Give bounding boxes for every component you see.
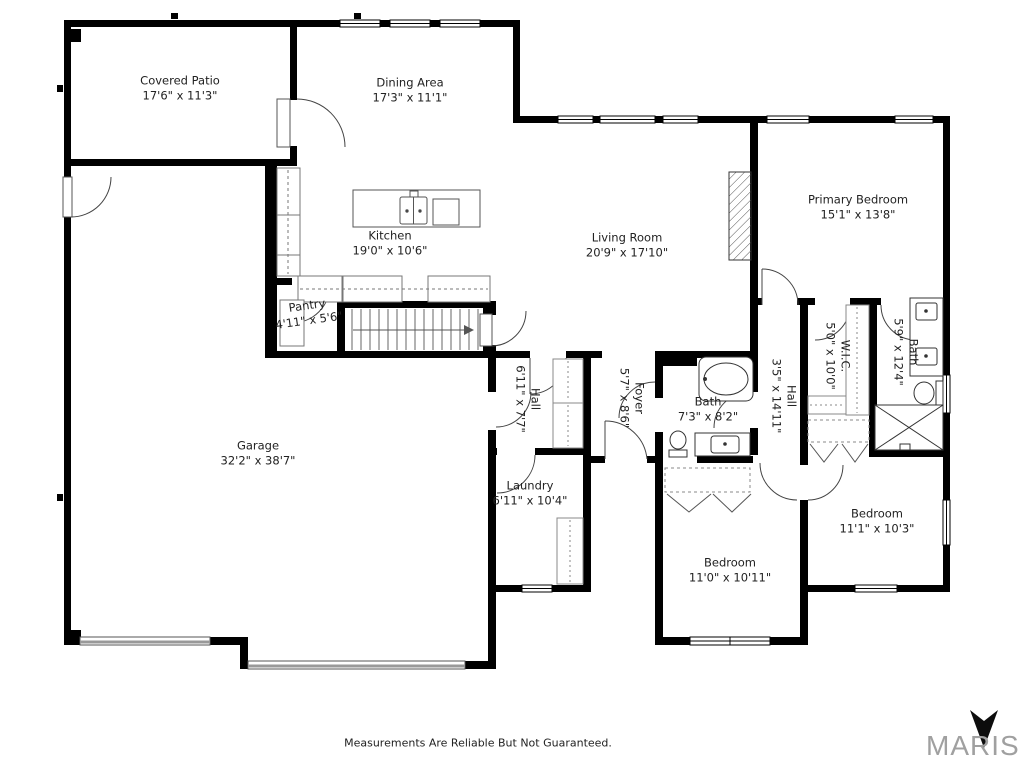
- stairs-icon: [352, 309, 478, 350]
- room-label-bath-primary: Bath 5'9" x 12'4": [891, 318, 920, 386]
- bifold-door-icon: [667, 494, 711, 512]
- room-label-covered-patio: Covered Patio 17'6" x 11'3": [140, 73, 220, 102]
- garage-door-icon: [80, 637, 465, 669]
- room-label-hall-small: Hall 6'11" x 7'7": [513, 365, 542, 433]
- room-label-hall-long: Hall 3'5" x 14'11": [769, 359, 798, 434]
- bifold-door-icon: [842, 444, 868, 462]
- appliance-icon: [433, 199, 459, 225]
- floorplan-page: Covered Patio 17'6" x 11'3" Dining Area …: [0, 0, 1024, 768]
- kitchen-island: [353, 190, 480, 227]
- room-label-garage: Garage 32'2" x 38'7": [221, 438, 296, 467]
- room-label-foyer: Foyer 5'7" x 8'6": [617, 368, 646, 428]
- toilet-icon: [669, 431, 687, 457]
- floorplan-drawing: [0, 0, 1024, 768]
- room-label-bedroom-right: Bedroom 11'1" x 10'3": [840, 506, 915, 535]
- room-label-living-room: Living Room 20'9" x 17'10": [586, 230, 668, 259]
- room-label-bedroom-left: Bedroom 11'0" x 10'11": [689, 555, 771, 584]
- disclaimer-text: Measurements Are Reliable But Not Guaran…: [344, 737, 612, 750]
- room-label-bath-main: Bath 7'3" x 8'2": [678, 394, 738, 423]
- maris-logo-text: MARIS: [926, 730, 1020, 762]
- room-label-wic: W.I.C. 5'0" x 10'0": [823, 322, 852, 390]
- room-label-kitchen: Kitchen 19'0" x 10'6": [353, 228, 428, 257]
- fireplace-icon: [729, 172, 751, 260]
- bifold-door-icon: [810, 444, 838, 462]
- walls-layer: [57, 13, 950, 669]
- room-label-primary-bedroom: Primary Bedroom 15'1" x 13'8": [808, 192, 908, 221]
- room-label-laundry: Laundry 6'11" x 10'4": [493, 478, 568, 507]
- vanity-sink-icon: [695, 433, 750, 456]
- shower-icon: [875, 405, 943, 450]
- maris-logo: MARIS: [926, 724, 1024, 768]
- bifold-door-icon: [713, 494, 751, 512]
- room-label-dining-area: Dining Area 17'3" x 11'1": [373, 75, 448, 104]
